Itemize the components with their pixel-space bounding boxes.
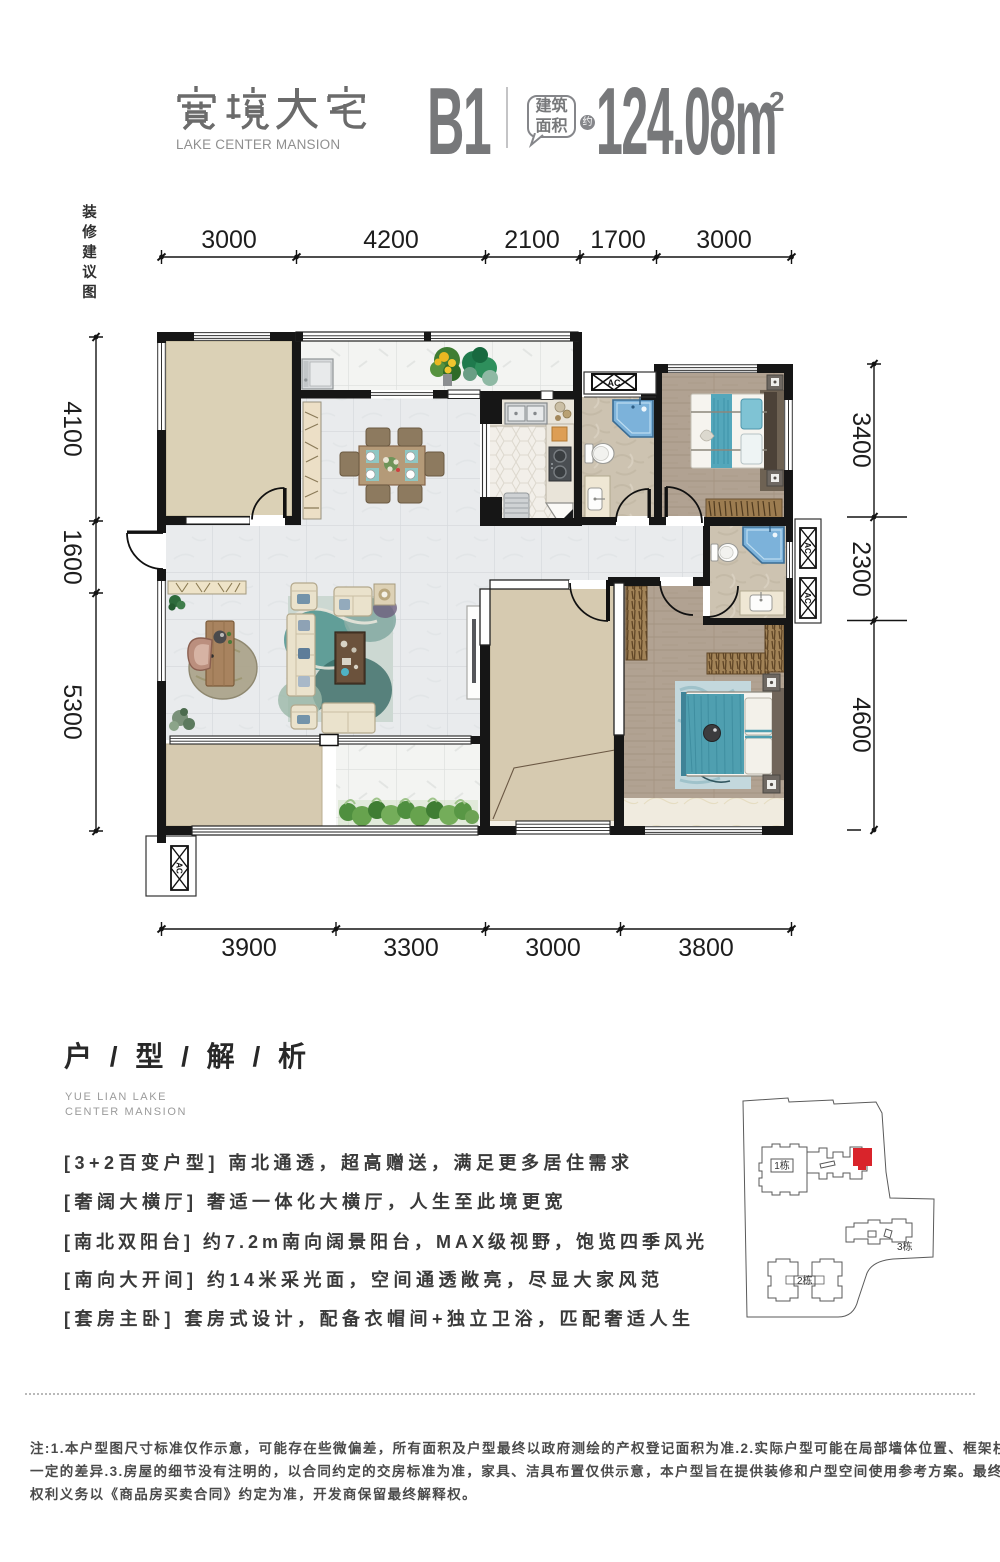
svg-text:3900: 3900	[221, 934, 277, 962]
svg-text:1700: 1700	[590, 226, 646, 254]
svg-text:AC: AC	[175, 862, 184, 874]
svg-text:4100: 4100	[58, 401, 86, 457]
svg-text:2栋: 2栋	[797, 1274, 813, 1287]
svg-text:3000: 3000	[525, 934, 581, 962]
svg-text:5300: 5300	[58, 684, 86, 740]
svg-text:AC: AC	[803, 542, 812, 554]
svg-text:3000: 3000	[201, 226, 257, 254]
svg-text:1600: 1600	[58, 529, 86, 585]
svg-text:AC: AC	[608, 378, 621, 388]
svg-text:3800: 3800	[678, 934, 734, 962]
svg-text:3400: 3400	[847, 412, 875, 468]
svg-text:3300: 3300	[383, 934, 439, 962]
svg-text:1栋: 1栋	[774, 1159, 790, 1172]
svg-text:3栋: 3栋	[897, 1240, 913, 1253]
svg-text:4200: 4200	[363, 226, 419, 254]
svg-text:AC: AC	[803, 592, 812, 604]
svg-text:2100: 2100	[504, 226, 560, 254]
svg-text:3000: 3000	[696, 226, 752, 254]
svg-text:4600: 4600	[847, 697, 875, 753]
svg-text:2300: 2300	[847, 541, 875, 597]
